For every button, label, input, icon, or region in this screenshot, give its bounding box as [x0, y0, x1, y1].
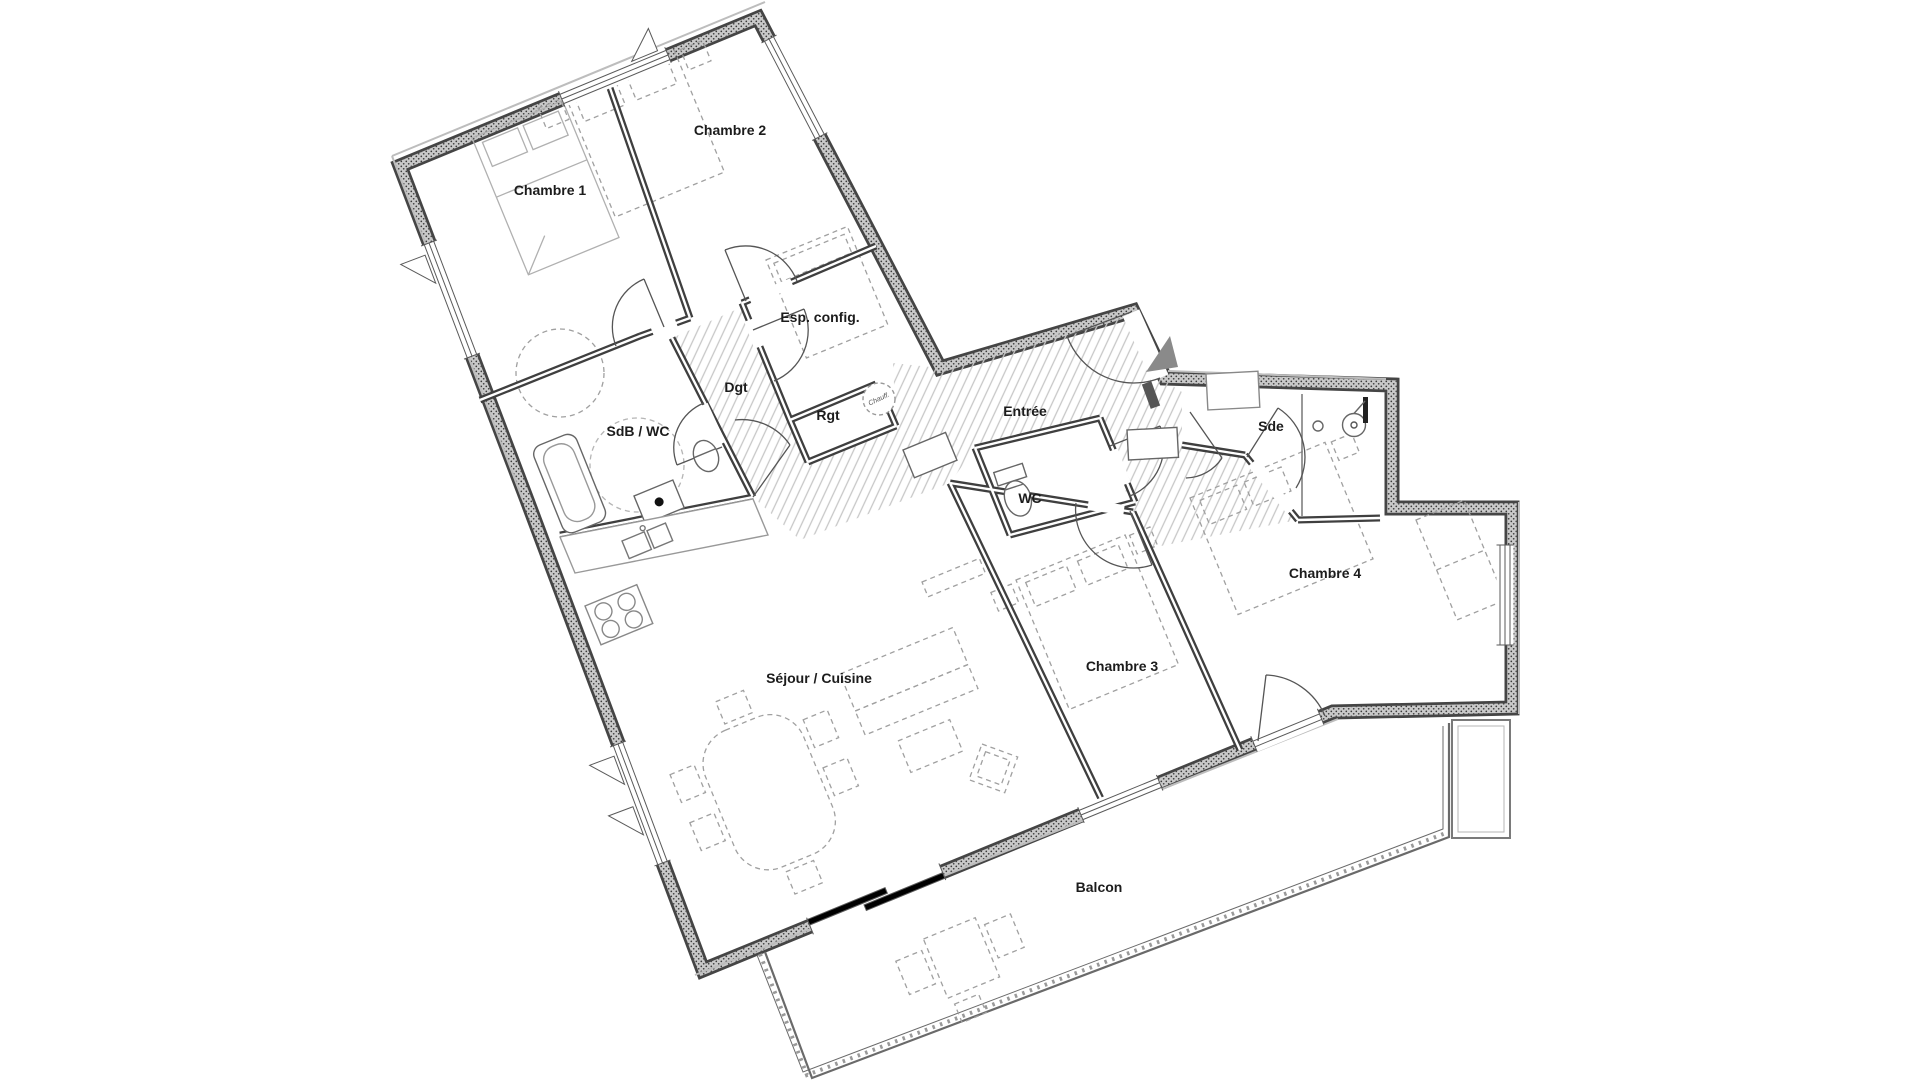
room-label-sde: Sde — [1258, 418, 1284, 434]
hall-cupboard-2 — [1127, 427, 1179, 460]
floor-plan-canvas: Chambre 1 Chambre 2 Esp. config. Dgt Rgt… — [0, 0, 1920, 1080]
balcony-table-set — [892, 905, 1042, 1037]
room-label-chambre-3: Chambre 3 — [1086, 658, 1159, 674]
room-label-wc: WC — [1018, 490, 1041, 506]
room-label-chambre-2: Chambre 2 — [694, 122, 767, 138]
room-label-entree: Entrée — [1003, 403, 1047, 419]
balcony-separator-wall — [1452, 720, 1510, 838]
room-label-chambre-4: Chambre 4 — [1289, 565, 1362, 581]
room-label-sdb-wc: SdB / WC — [607, 423, 670, 439]
room-label-balcon: Balcon — [1076, 879, 1123, 895]
room-label-sejour-cuisine: Séjour / Cuisine — [766, 670, 872, 686]
room-label-chambre-1: Chambre 1 — [514, 182, 587, 198]
room-label-dgt: Dgt — [724, 379, 748, 395]
floor-drain — [1313, 421, 1323, 431]
palier-wall-stub — [1206, 371, 1260, 410]
floor-plan-page: Chambre 1 Chambre 2 Esp. config. Dgt Rgt… — [0, 0, 1920, 1080]
room-label-rgt: Rgt — [816, 407, 840, 423]
room-label-esp-config: Esp. config. — [780, 309, 859, 325]
window-chambre-4-e — [1497, 545, 1514, 645]
